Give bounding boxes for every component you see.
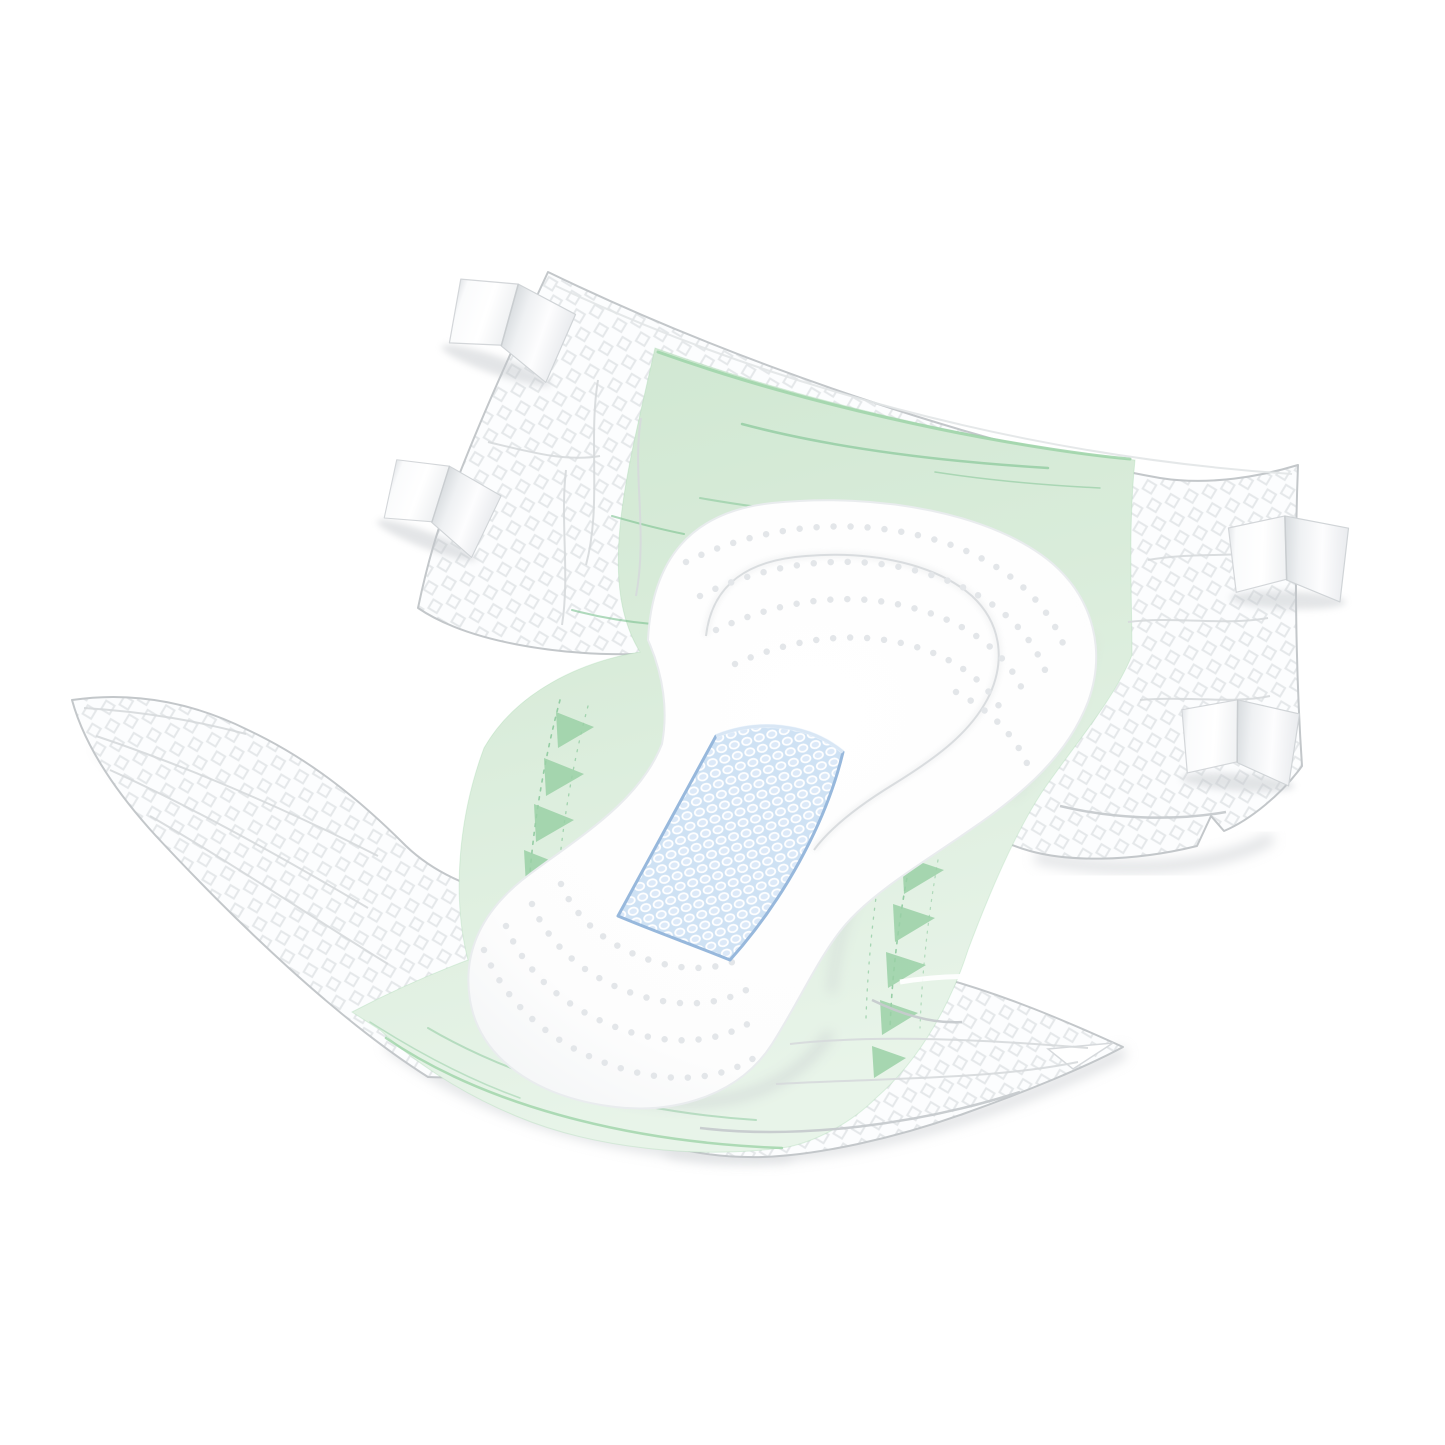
tape-tab-shape [1177, 696, 1301, 795]
tape-tab-top-right [1226, 514, 1349, 611]
product-illustration [0, 0, 1445, 1445]
tape-tab-bottom-right [1177, 696, 1301, 795]
tape-tab-shape [1226, 514, 1349, 611]
brief-product-image [0, 0, 1445, 1445]
